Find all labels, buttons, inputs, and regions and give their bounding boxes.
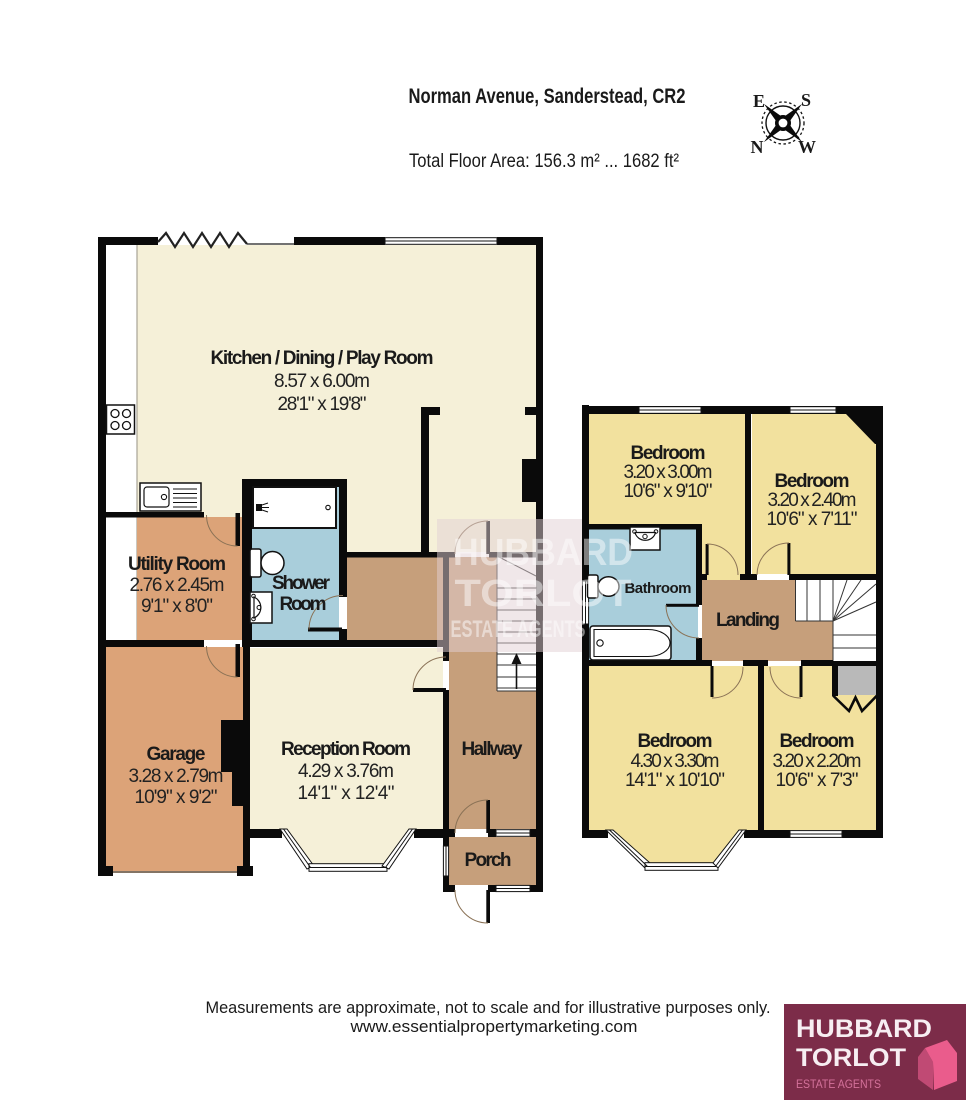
svg-text:Porch: Porch xyxy=(465,850,512,871)
svg-text:10'6" x 9'10": 10'6" x 9'10" xyxy=(624,481,713,502)
svg-text:Room: Room xyxy=(280,594,327,615)
svg-text:TORLOT: TORLOT xyxy=(455,573,632,615)
svg-text:ESTATE AGENTS: ESTATE AGENTS xyxy=(796,1077,881,1091)
svg-text:Reception Room: Reception Room xyxy=(281,739,411,760)
svg-text:Bedroom: Bedroom xyxy=(631,443,706,464)
svg-text:Bedroom: Bedroom xyxy=(780,731,855,752)
svg-text:2.76 x 2.45m: 2.76 x 2.45m xyxy=(130,575,225,596)
svg-text:Landing: Landing xyxy=(716,610,780,631)
svg-text:3.20 x 2.20m: 3.20 x 2.20m xyxy=(773,751,862,772)
svg-text:Norman Avenue, Sanderstead, CR: Norman Avenue, Sanderstead, CR2 xyxy=(409,85,686,108)
svg-text:14'1" x 12'4": 14'1" x 12'4" xyxy=(298,783,395,804)
svg-text:Bathroom: Bathroom xyxy=(625,580,692,597)
svg-text:3.20 x 2.40m: 3.20 x 2.40m xyxy=(768,490,857,511)
svg-text:4.29 x 3.76m: 4.29 x 3.76m xyxy=(298,761,394,782)
svg-text:Hallway: Hallway xyxy=(462,739,523,760)
svg-text:10'6" x 7'11": 10'6" x 7'11" xyxy=(767,509,858,530)
svg-text:8.57 x 6.00m: 8.57 x 6.00m xyxy=(274,371,370,392)
svg-text:HUBBARD: HUBBARD xyxy=(796,1015,932,1043)
svg-text:9'1" x 8'0": 9'1" x 8'0" xyxy=(141,596,213,617)
svg-text:www.essentialpropertymarketing: www.essentialpropertymarketing.com xyxy=(349,1017,637,1036)
svg-text:10'9" x 9'2": 10'9" x 9'2" xyxy=(135,787,218,808)
svg-text:4.30 x 3.30m: 4.30 x 3.30m xyxy=(631,751,720,772)
svg-text:TORLOT: TORLOT xyxy=(796,1044,906,1072)
svg-text:E: E xyxy=(753,91,765,111)
svg-text:14'1" x 10'10": 14'1" x 10'10" xyxy=(625,770,725,791)
svg-text:Utility Room: Utility Room xyxy=(128,554,226,575)
svg-text:28'1" x 19'8": 28'1" x 19'8" xyxy=(278,394,367,415)
svg-text:Bedroom: Bedroom xyxy=(775,471,850,492)
svg-text:10'6" x 7'3": 10'6" x 7'3" xyxy=(776,770,859,791)
svg-text:ESTATE AGENTS: ESTATE AGENTS xyxy=(451,616,586,643)
svg-text:W: W xyxy=(798,137,816,157)
svg-text:Shower: Shower xyxy=(272,573,331,594)
svg-text:Kitchen / Dining / Play Room: Kitchen / Dining / Play Room xyxy=(211,348,434,369)
svg-text:Bedroom: Bedroom xyxy=(638,731,713,752)
svg-text:S: S xyxy=(801,90,811,110)
svg-text:3.28 x 2.79m: 3.28 x 2.79m xyxy=(129,766,224,787)
svg-text:HUBBARD: HUBBARD xyxy=(453,532,633,574)
svg-text:Garage: Garage xyxy=(147,744,206,765)
svg-text:Measurements are approximate,: Measurements are approximate, not to sca… xyxy=(206,998,771,1017)
svg-text:Total Floor Area: 156.3 m² ...: Total Floor Area: 156.3 m² ... 1682 ft² xyxy=(409,151,679,172)
svg-text:N: N xyxy=(751,137,764,157)
svg-text:3.20 x 3.00m: 3.20 x 3.00m xyxy=(624,462,713,483)
